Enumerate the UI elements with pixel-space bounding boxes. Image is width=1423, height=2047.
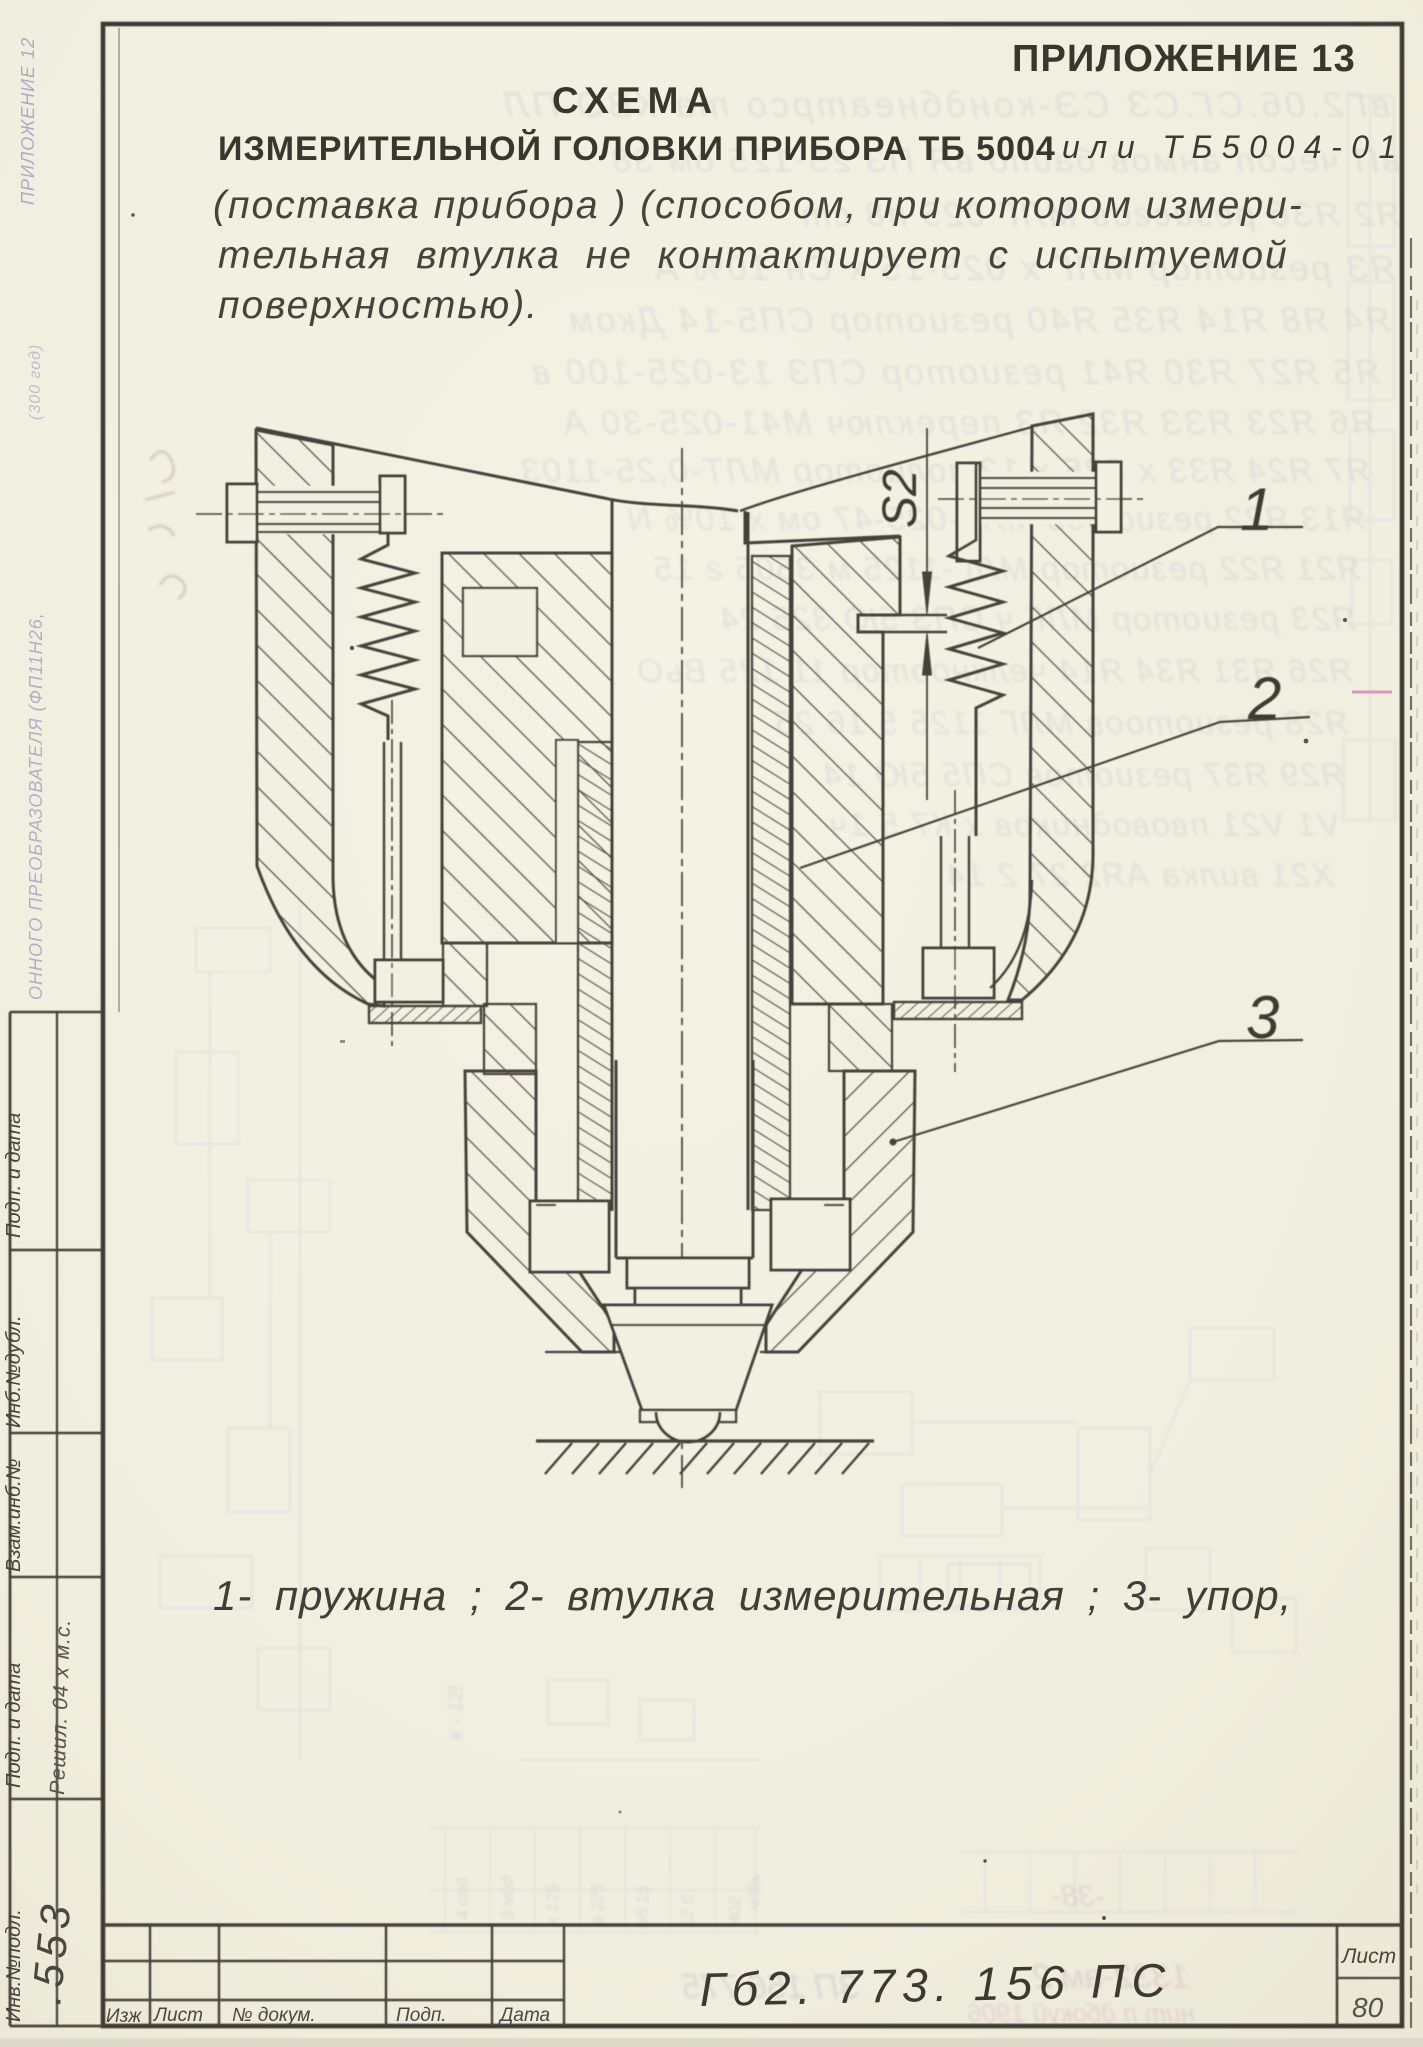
- svg-text:ОННОГО ПРЕОБРАЗОВАТЕЛЯ (ФП11: ОННОГО ПРЕОБРАЗОВАТЕЛЯ (ФП11Н26,: [26, 612, 46, 1000]
- svg-text:(поставка прибора ) (способо: (поставка прибора ) (способом, при котор…: [213, 184, 1304, 227]
- svg-text:Я6 Я23 ЯЗЗ Я32 ЯЗ переключ М41: Я6 Я23 ЯЗЗ Я32 ЯЗ переключ М41-025-30 А: [561, 404, 1377, 442]
- svg-text:Лист: Лист: [1340, 1945, 1396, 1968]
- svg-text:80: 80: [1352, 1992, 1384, 2023]
- svg-text:Дата: Дата: [498, 2005, 550, 2026]
- svg-text:к - 12!: к - 12!: [445, 1685, 467, 1740]
- svg-text:S2: S2: [874, 469, 927, 528]
- svg-text:12 б: 12 б: [678, 1893, 697, 1928]
- svg-text:Инб.№дубл.: Инб.№дубл.: [3, 1315, 25, 1428]
- svg-text:Лист: Лист: [152, 2005, 203, 2026]
- svg-text:Я4 Я8 Я14 Я35 Я40 резиотор СП5: Я4 Я8 Я14 Я35 Я40 резиотор СП5-14 Дком: [566, 301, 1392, 340]
- svg-text:1- пружина ; 2- втулка изме: 1- пружина ; 2- втулка измерительная ; 3…: [213, 1572, 1292, 1619]
- svg-text:ИЗМЕРИТЕЛЬНОЙ ГОЛОВКИ ПРИБОР: ИЗМЕРИТЕЛЬНОЙ ГОЛОВКИ ПРИБОРА ТБ 5004: [218, 129, 1056, 168]
- svg-text:402: 402: [725, 1896, 744, 1925]
- svg-text:-38-: -38-: [1052, 1880, 1105, 1913]
- svg-text:Взам.инб.№: Взам.инб.№: [3, 1459, 25, 1572]
- svg-text:СХЕМА: СХЕМА: [552, 80, 719, 121]
- svg-text:Я26 Я31 Я34 Я14 челкноотор 11: Я26 Я31 Я34 Я14 челкноотор 11 125 ВьО: [635, 652, 1354, 689]
- svg-text:3: 3: [1246, 984, 1279, 1051]
- svg-text:2: 2: [1247, 665, 1281, 732]
- svg-text:Подп. и дата: Подп. и дата: [3, 1663, 25, 1788]
- svg-text:№ докум.: № докум.: [232, 2005, 316, 2026]
- svg-text:к 125: к 125: [543, 1883, 562, 1925]
- svg-text:поверхностью).: поверхностью).: [218, 284, 539, 327]
- svg-text:ПРИЛОЖЕНИЕ 12: ПРИЛОЖЕНИЕ 12: [18, 37, 38, 205]
- svg-text:1: 1: [1240, 476, 1273, 543]
- svg-text:Гб2. 773. 156 ПС: Гб2. 773. 156 ПС: [699, 1953, 1172, 2016]
- svg-text:Изж: Изж: [106, 2006, 142, 2027]
- svg-text:тельная втулка не контактир: тельная втулка не контактирует с испытуе…: [218, 234, 1289, 277]
- svg-text:3 мод: 3 мод: [498, 1875, 517, 1920]
- svg-text:ч05ь: ч05ь: [745, 1873, 764, 1910]
- svg-text:Я5 Я27 Я30 Я41 резиотор СПЗ 13: Я5 Я27 Я30 Я41 резиотор СПЗ 13-025-100 в: [529, 353, 1382, 392]
- svg-text:или ТБ5004-01: или ТБ5004-01: [1062, 129, 1406, 165]
- svg-text:Х21 вилка АЯ2 27 2 14: Х21 вилка АЯ2 27 2 14: [945, 856, 1335, 893]
- svg-text:об 15: об 15: [633, 1885, 652, 1928]
- svg-text:Подп.: Подп.: [396, 2005, 447, 2026]
- svg-text:в 225: в 225: [588, 1882, 607, 1925]
- svg-text:Инв.№подл.: Инв.№подл.: [3, 1909, 25, 2022]
- svg-text:4 опд: 4 опд: [453, 1878, 472, 1920]
- svg-text:Подп. и дата: Подп. и дата: [3, 1113, 25, 1238]
- svg-text:(300 год): (300 год): [27, 344, 44, 420]
- svg-text:ПРИЛОЖЕНИЕ 13: ПРИЛОЖЕНИЕ 13: [1012, 38, 1356, 80]
